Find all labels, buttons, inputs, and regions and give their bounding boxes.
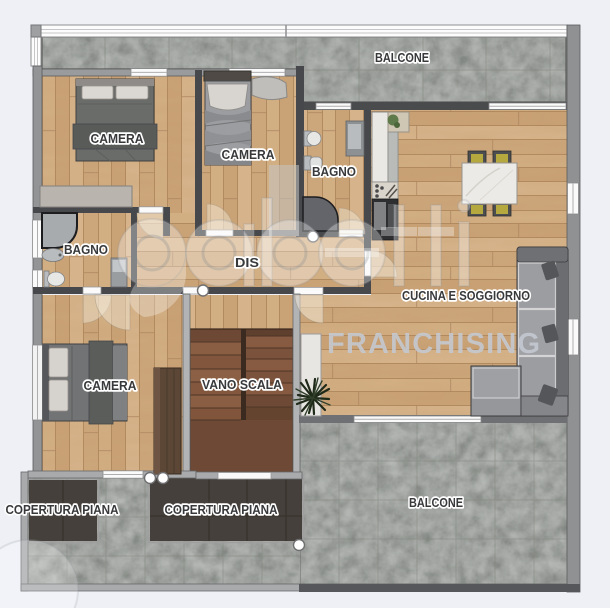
svg-text:BALCONE: BALCONE [375,51,429,65]
svg-text:CUCINA E SOGGIORNO: CUCINA E SOGGIORNO [402,289,530,303]
svg-text:BAGNO: BAGNO [312,165,356,179]
svg-text:CAMERA: CAMERA [84,379,137,393]
svg-text:BAGNO: BAGNO [64,243,108,257]
svg-text:COPERTURA PIANA: COPERTURA PIANA [6,503,119,517]
svg-text:CAMERA: CAMERA [91,132,144,146]
svg-text:CAMERA: CAMERA [222,148,275,162]
svg-text:DIS: DIS [235,256,259,270]
svg-text:BALCONE: BALCONE [409,496,463,510]
svg-text:FRANCHISING: FRANCHISING [327,328,540,360]
svg-text:VANO SCALA: VANO SCALA [202,378,282,392]
svg-text:COPERTURA PIANA: COPERTURA PIANA [165,503,278,517]
